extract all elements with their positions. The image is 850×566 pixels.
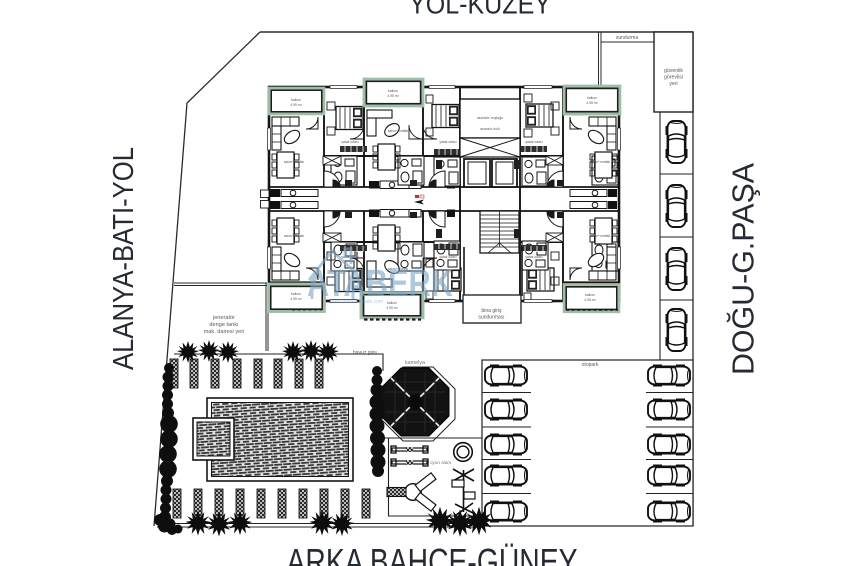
svg-text:yatak odası: yatak odası	[525, 140, 542, 144]
svg-text:sundurma: sundurma	[616, 35, 638, 41]
svg-text:4.95 m²: 4.95 m²	[584, 298, 596, 302]
svg-text:ARKA BAHÇE-GÜNEY: ARKA BAHÇE-GÜNEY	[287, 541, 578, 566]
svg-text:salon+mutfak: salon+mutfak	[590, 234, 611, 238]
svg-text:4.95 m²: 4.95 m²	[290, 103, 302, 107]
svg-text:sundurması: sundurması	[478, 315, 504, 321]
svg-text:balkon: balkon	[291, 292, 301, 296]
svg-text:balkon: balkon	[585, 293, 595, 297]
svg-text:havuz giriş: havuz giriş	[353, 350, 377, 356]
svg-text:jeneratör: jeneratör	[212, 315, 235, 321]
svg-text:ALANYA-BATI-YOL: ALANYA-BATI-YOL	[108, 147, 140, 370]
svg-text:4.95 m²: 4.95 m²	[386, 306, 398, 310]
svg-text:görevlisi: görevlisi	[664, 75, 683, 81]
svg-text:denge tankı: denge tankı	[209, 322, 239, 328]
svg-text:balkon: balkon	[388, 89, 398, 93]
svg-text:DOĞU-G.PAŞA: DOĞU-G.PAŞA	[726, 163, 761, 375]
svg-text:salon+mutfak: salon+mutfak	[590, 160, 611, 164]
svg-text:asansör boşluğu: asansör boşluğu	[477, 116, 503, 120]
svg-text:salon+mutfak: salon+mutfak	[284, 234, 305, 238]
svg-text:balkon: balkon	[291, 98, 301, 102]
svg-text:yatak odası: yatak odası	[341, 140, 358, 144]
svg-text:kamelya: kamelya	[405, 360, 425, 366]
svg-text:salon+mutfak: salon+mutfak	[284, 160, 305, 164]
svg-text:4.95 m²: 4.95 m²	[586, 101, 598, 105]
svg-text:mak. dairesi yeri: mak. dairesi yeri	[204, 329, 245, 335]
svg-text:yeri: yeri	[669, 81, 677, 87]
svg-text:www.ataberkestate.com: www.ataberkestate.com	[330, 299, 383, 305]
svg-text:yatak odası: yatak odası	[439, 140, 456, 144]
svg-text:yatak odası: yatak odası	[525, 255, 542, 259]
svg-text:4.95 m²: 4.95 m²	[387, 94, 399, 98]
svg-text:balkon: balkon	[587, 96, 597, 100]
svg-text:güvenlik: güvenlik	[664, 68, 683, 74]
svg-text:salon+mutfak: salon+mutfak	[388, 129, 409, 133]
svg-text:otopark: otopark	[582, 362, 599, 368]
svg-text:bina giriş: bina giriş	[481, 308, 502, 314]
svg-text:4.95 m²: 4.95 m²	[290, 297, 302, 301]
svg-text:yatak odası: yatak odası	[439, 255, 456, 259]
svg-text:YOL-KUZEY: YOL-KUZEY	[409, 0, 551, 20]
svg-text:oyun alanı: oyun alanı	[430, 460, 451, 465]
svg-text:asansör holü: asansör holü	[480, 127, 500, 131]
